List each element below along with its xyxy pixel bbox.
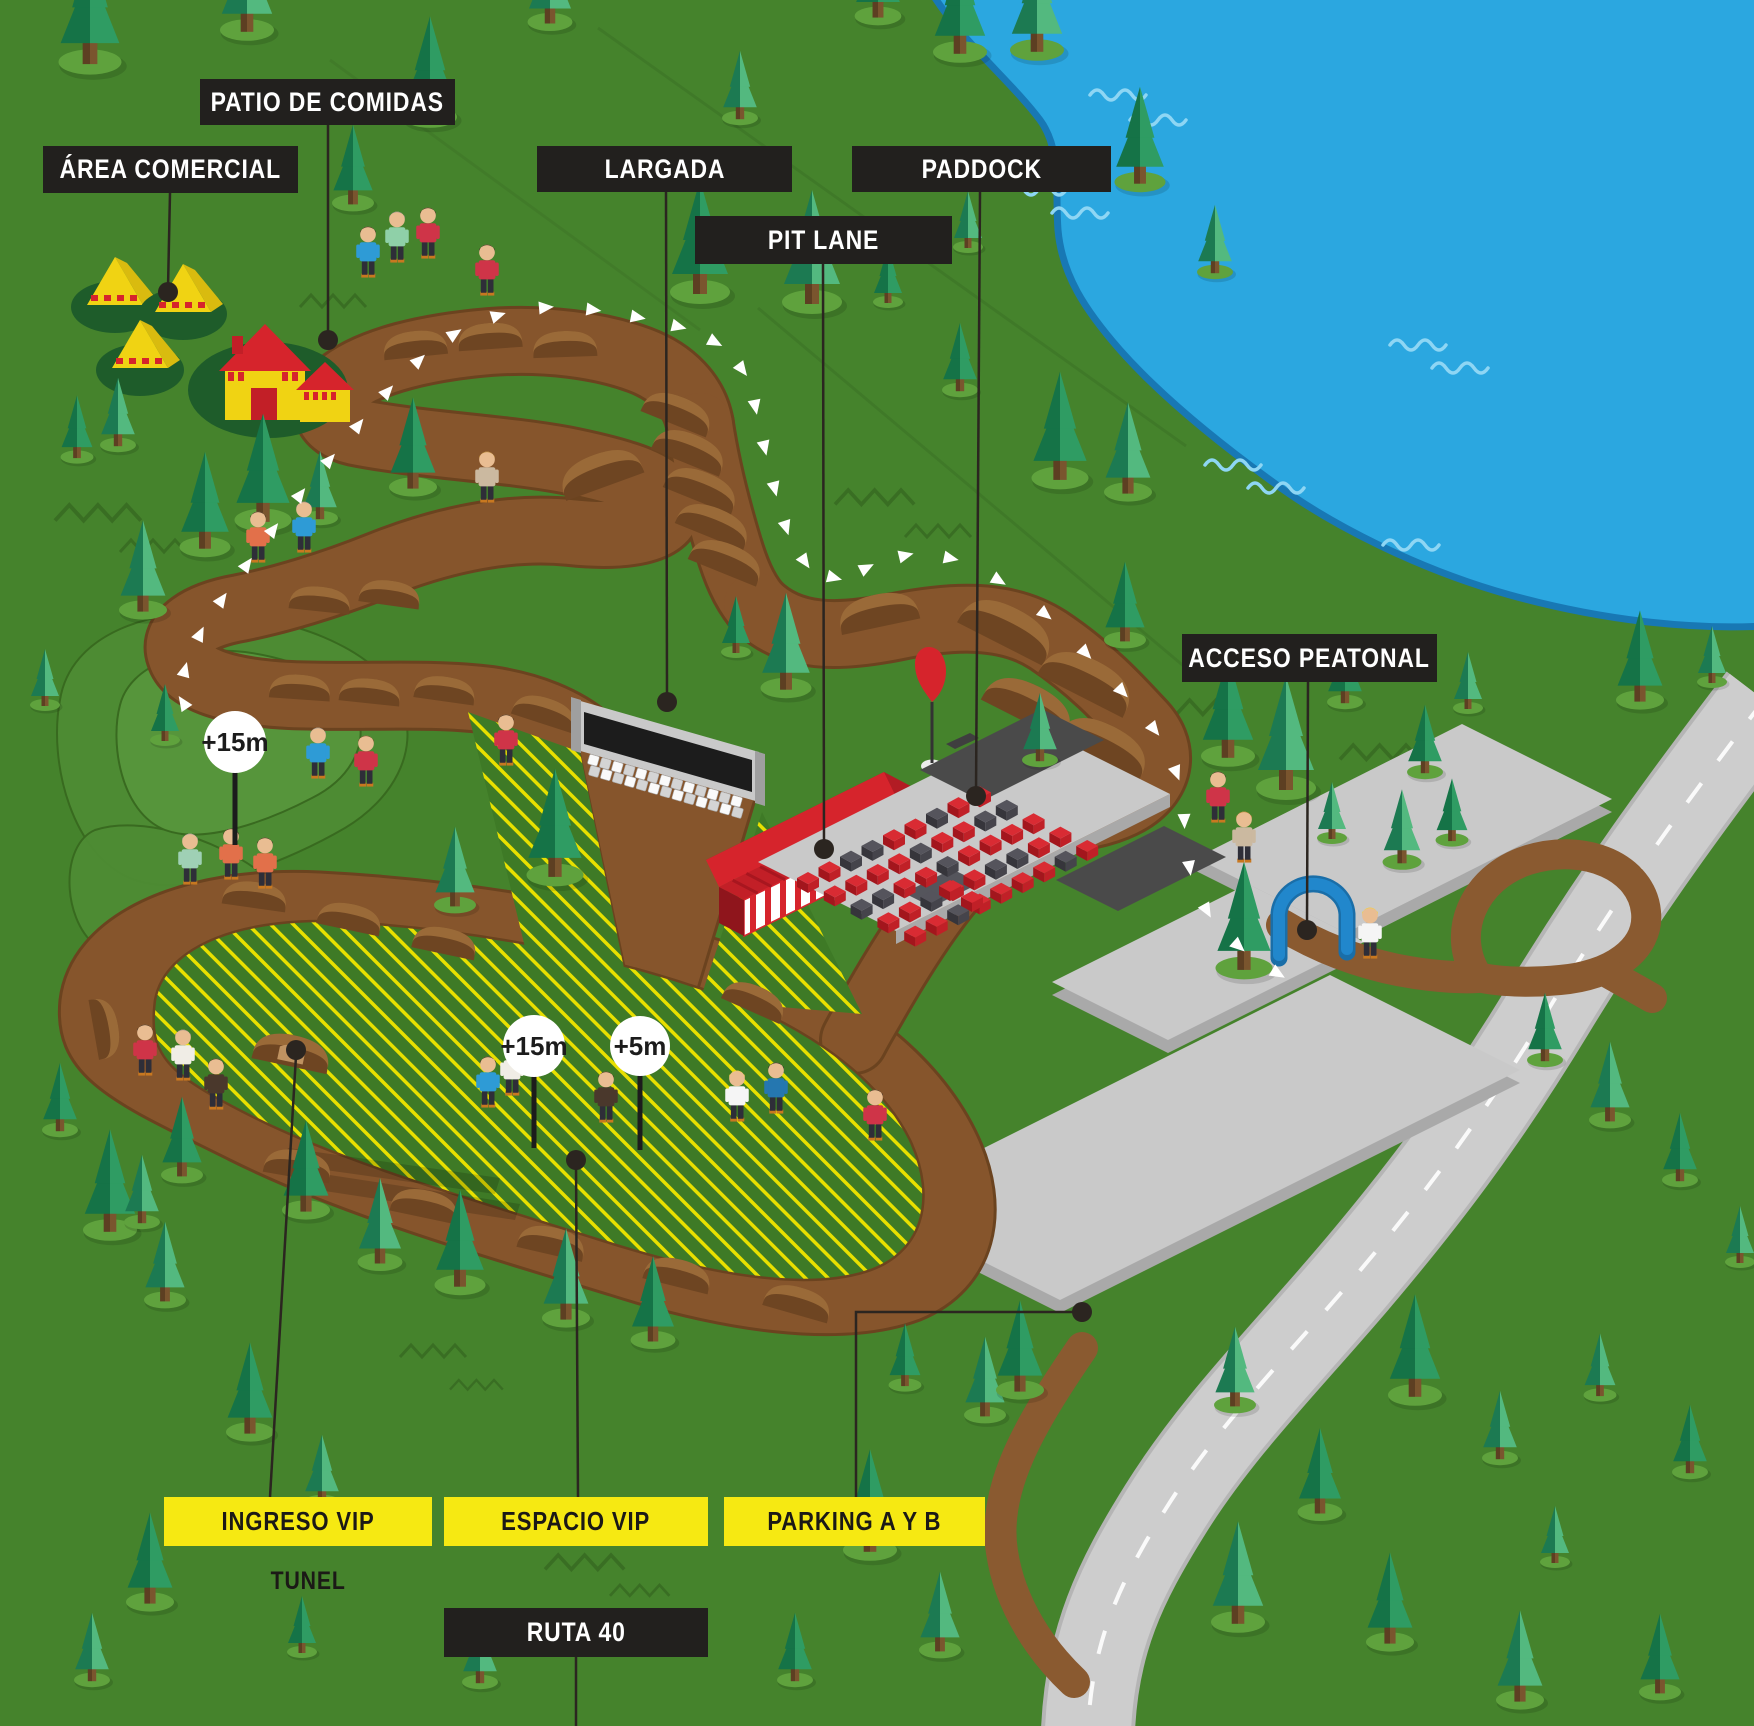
label-parking-a-y-b: PARKING A Y B	[724, 1497, 985, 1546]
svg-text:+5m: +5m	[614, 1031, 667, 1061]
label-acceso-text: ACCESO PEATONAL	[1189, 643, 1430, 674]
label-ingreso-text: INGRESO VIP	[221, 1506, 374, 1537]
svg-text:+15m: +15m	[500, 1031, 567, 1061]
label-ingreso-vip: INGRESO VIP	[164, 1497, 432, 1546]
label-largada: LARGADA	[537, 146, 792, 192]
svg-text:+15m: +15m	[201, 727, 268, 757]
label-largada-text: LARGADA	[604, 154, 725, 185]
label-ruta-40: RUTA 40	[444, 1608, 708, 1657]
label-area-comercial: ÁREA COMERCIAL	[43, 146, 298, 193]
label-tunel-text: TUNEL	[270, 1567, 345, 1596]
event-map: +15m +15m +5m PATIO DE COMIDAS ÁREA COME…	[0, 0, 1754, 1726]
label-ruta-text: RUTA 40	[526, 1617, 625, 1648]
label-espacio-vip: ESPACIO VIP	[444, 1497, 708, 1546]
label-tunel: TUNEL	[243, 1563, 373, 1599]
label-area-text: ÁREA COMERCIAL	[60, 154, 281, 185]
label-pit-lane-text: PIT LANE	[768, 225, 879, 256]
label-paddock: PADDOCK	[852, 146, 1111, 192]
label-paddock-text: PADDOCK	[921, 154, 1041, 185]
label-pit-lane: PIT LANE	[695, 216, 952, 264]
label-acceso-peatonal: ACCESO PEATONAL	[1182, 634, 1437, 682]
label-espacio-text: ESPACIO VIP	[502, 1506, 651, 1537]
label-patio-text: PATIO DE COMIDAS	[211, 87, 444, 118]
label-patio-de-comidas: PATIO DE COMIDAS	[200, 79, 455, 125]
label-parking-text: PARKING A Y B	[768, 1506, 942, 1537]
